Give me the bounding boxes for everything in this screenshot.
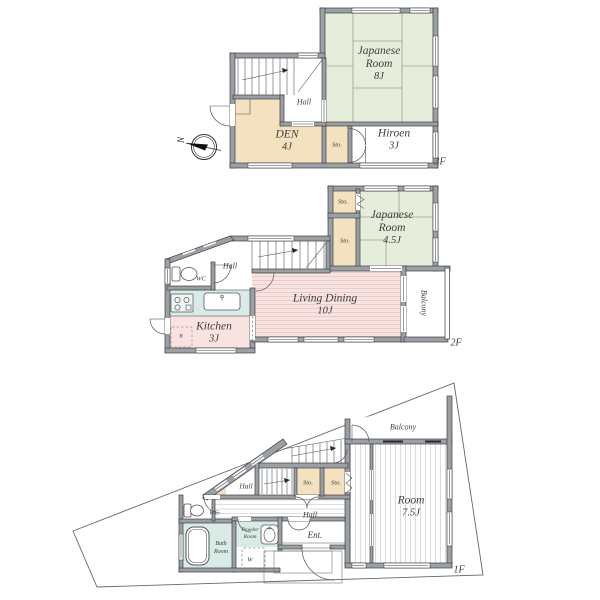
powder-sink-icon [261, 525, 278, 544]
room-label-hall-1f: Hall [303, 510, 317, 519]
room-label-den: DEN 4J [276, 128, 299, 153]
washer-label: W [247, 556, 252, 563]
floor-label-3f: 3F [434, 156, 445, 168]
room-label-sto-1f-1: Sto. [303, 479, 313, 486]
room-label-room-75j: Room 7.5J [398, 494, 425, 519]
room-label-hall-3f: Hall [297, 97, 311, 106]
room-label-bath: Bath Room [214, 541, 228, 557]
bathtub-icon [186, 527, 209, 565]
room-label-entrance: Ent. [308, 530, 323, 540]
stairs-1f-upper [283, 438, 348, 463]
compass-icon [186, 135, 221, 160]
refrigerator-label: R [179, 333, 182, 340]
room-label-hiroen: Hiroen 3J [378, 127, 410, 152]
room-label-sto-1f-2: Sto. [331, 479, 341, 486]
room-label-japanese-8j: Japanese Room 8J [358, 45, 401, 84]
toilet-icon-2f [172, 267, 197, 281]
room-label-sto-2f-1: Sto. [338, 198, 348, 205]
toilet-icon-1f [184, 504, 204, 517]
room-label-kitchen: Kitchen 3J [196, 320, 232, 345]
stove-icon [171, 294, 193, 312]
room-label-sto-2f-2: Sto. [340, 237, 350, 244]
room-label-sto-3f: Sto. [332, 141, 342, 148]
room-label-powder: Powder Room [241, 527, 258, 541]
room-label-living-dining: Living Dining 10J [293, 292, 357, 317]
floorplan-page: Japanese Room 8J Hall DEN 4J Sto. Hiroen… [0, 0, 600, 600]
room-label-hall-2f: Hall [223, 261, 237, 270]
room-label-wc-2f: WC [196, 275, 206, 282]
floor-label-1f: 1F [453, 564, 464, 576]
compass-north-label: N [176, 137, 186, 143]
kitchen-sink-icon [204, 293, 240, 310]
stairs-3f [238, 58, 322, 95]
floor-label-2f: 2F [450, 337, 461, 349]
room-label-japanese-45j: Japanese Room 4.5J [371, 209, 414, 248]
floor-1f-plan [73, 383, 483, 587]
room-label-balcony-1f: Balcony [390, 422, 416, 431]
room-label-wc-1f: WC [209, 509, 219, 516]
stairs-2f [252, 241, 326, 269]
room-label-hall-1f-upper: Hall [239, 483, 252, 492]
room-label-balcony-2f: Balcony [419, 290, 428, 316]
